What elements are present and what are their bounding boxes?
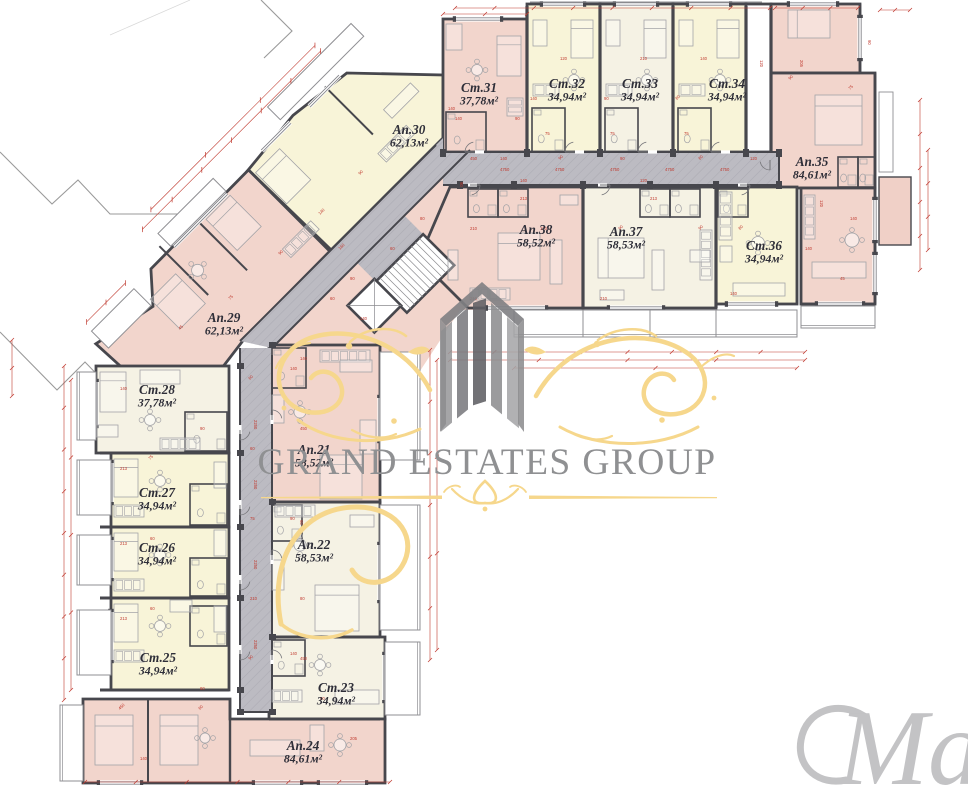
svg-text:60: 60: [299, 520, 304, 525]
svg-text:2250: 2250: [253, 640, 258, 650]
svg-text:37,78м²: 37,78м²: [459, 94, 499, 108]
svg-text:84,61м²: 84,61м²: [284, 752, 323, 766]
svg-text:75: 75: [250, 516, 255, 521]
svg-text:60: 60: [390, 246, 395, 251]
svg-text:90: 90: [515, 116, 520, 121]
svg-text:62,13м²: 62,13м²: [205, 324, 244, 338]
svg-text:140: 140: [500, 156, 508, 161]
svg-text:4750: 4750: [610, 167, 620, 172]
svg-text:210: 210: [470, 226, 478, 231]
svg-text:80: 80: [420, 216, 425, 221]
svg-text:210: 210: [250, 596, 258, 601]
svg-text:140: 140: [360, 316, 368, 321]
svg-text:210: 210: [640, 56, 648, 61]
svg-text:58,53м²: 58,53м²: [607, 238, 646, 252]
svg-text:34,94м²: 34,94м²: [620, 90, 660, 104]
svg-text:90: 90: [620, 156, 625, 161]
svg-text:34,94м²: 34,94м²: [316, 694, 356, 708]
svg-text:90: 90: [867, 40, 872, 45]
svg-text:90: 90: [604, 96, 609, 101]
svg-text:210: 210: [600, 296, 608, 301]
svg-text:120: 120: [819, 200, 824, 208]
svg-text:140: 140: [300, 356, 308, 361]
svg-text:213: 213: [520, 196, 528, 201]
svg-text:140: 140: [120, 386, 128, 391]
svg-text:140: 140: [290, 366, 298, 371]
svg-text:213: 213: [120, 466, 128, 471]
svg-text:34,94м²: 34,94м²: [547, 90, 587, 104]
svg-text:4750: 4750: [665, 167, 675, 172]
svg-text:140: 140: [520, 178, 528, 183]
svg-text:62,13м²: 62,13м²: [390, 136, 429, 150]
svg-text:GRAND ESTATES GROUP: GRAND ESTATES GROUP: [257, 442, 716, 483]
svg-text:140: 140: [730, 291, 738, 296]
svg-text:2250: 2250: [253, 420, 258, 430]
svg-text:4750: 4750: [555, 167, 565, 172]
svg-text:90: 90: [290, 516, 295, 521]
svg-text:140: 140: [850, 216, 858, 221]
svg-text:140: 140: [530, 96, 538, 101]
svg-text:140: 140: [700, 56, 708, 61]
svg-text:80: 80: [300, 596, 305, 601]
svg-text:140: 140: [448, 106, 456, 111]
svg-text:60: 60: [250, 446, 255, 451]
svg-text:90: 90: [200, 426, 205, 431]
svg-text:213: 213: [120, 616, 128, 621]
svg-text:58,53м²: 58,53м²: [295, 551, 334, 565]
svg-text:90: 90: [459, 182, 464, 187]
svg-text:75: 75: [684, 131, 689, 136]
svg-text:37,78м²: 37,78м²: [137, 396, 177, 410]
svg-text:60: 60: [330, 296, 335, 301]
svg-text:450: 450: [470, 156, 478, 161]
svg-text:2250: 2250: [253, 560, 258, 570]
svg-text:120: 120: [759, 60, 764, 68]
svg-text:34,94м²: 34,94м²: [137, 554, 177, 568]
svg-text:140: 140: [805, 246, 813, 251]
svg-text:58,52м²: 58,52м²: [517, 236, 556, 250]
svg-text:205: 205: [799, 60, 804, 68]
svg-text:34,94м²: 34,94м²: [138, 664, 178, 678]
svg-text:34,94м²: 34,94м²: [137, 499, 177, 513]
svg-text:75: 75: [545, 131, 550, 136]
svg-text:120: 120: [640, 178, 648, 183]
svg-text:4750: 4750: [720, 167, 730, 172]
svg-text:90: 90: [350, 276, 355, 281]
svg-text:Mag: Mag: [836, 689, 968, 785]
svg-text:205: 205: [350, 736, 358, 741]
svg-text:120: 120: [560, 56, 568, 61]
svg-text:34,94м²: 34,94м²: [707, 90, 747, 104]
svg-text:213: 213: [120, 541, 128, 546]
svg-text:140: 140: [455, 116, 463, 121]
svg-text:213: 213: [650, 196, 658, 201]
svg-text:84,61м²: 84,61м²: [793, 168, 832, 182]
svg-text:34,94м²: 34,94м²: [744, 252, 784, 266]
svg-text:140: 140: [290, 651, 298, 656]
svg-text:4750: 4750: [500, 167, 510, 172]
svg-text:45: 45: [840, 276, 845, 281]
svg-text:120: 120: [750, 156, 758, 161]
svg-text:60: 60: [150, 606, 155, 611]
svg-text:75: 75: [610, 131, 615, 136]
svg-text:90: 90: [200, 686, 205, 691]
svg-text:140: 140: [140, 756, 148, 761]
svg-text:450: 450: [300, 656, 308, 661]
